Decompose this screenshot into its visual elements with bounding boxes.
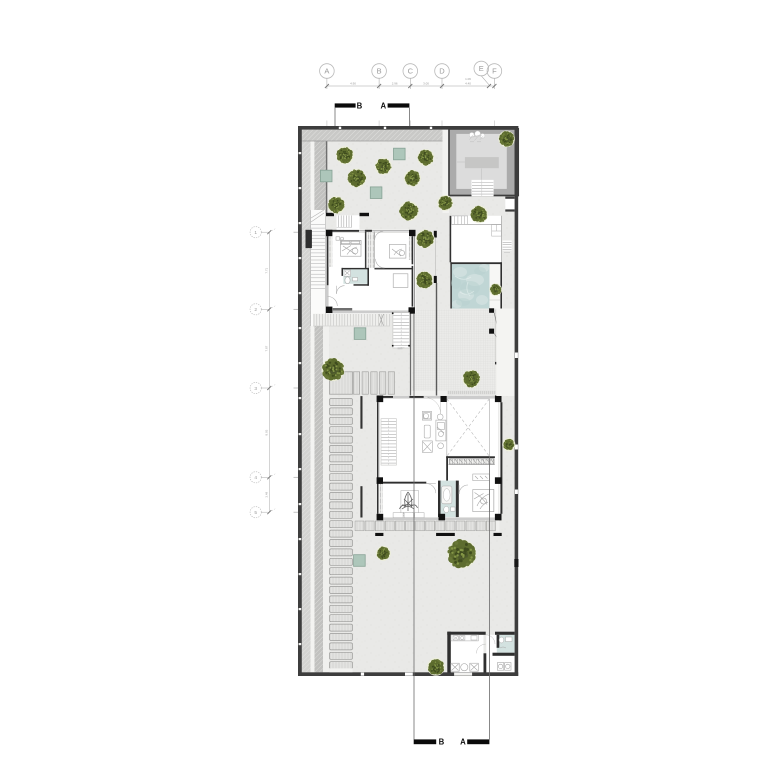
svg-text:B: B: [439, 738, 445, 747]
svg-text:3: 3: [254, 386, 257, 392]
svg-text:4.40: 4.40: [465, 81, 471, 85]
svg-text:2.96: 2.96: [392, 81, 398, 85]
svg-text:4: 4: [254, 475, 257, 481]
svg-text:2: 2: [254, 307, 257, 313]
svg-text:3.00: 3.00: [423, 81, 429, 85]
svg-text:C: C: [408, 67, 414, 76]
svg-text:5: 5: [254, 510, 257, 516]
svg-text:B: B: [377, 67, 382, 76]
svg-text:A: A: [380, 101, 386, 110]
svg-text:E: E: [479, 64, 484, 73]
svg-text:A: A: [460, 738, 466, 747]
svg-text:F: F: [492, 67, 497, 76]
svg-text:D: D: [439, 67, 445, 76]
svg-text:7.71: 7.71: [265, 267, 269, 273]
svg-text:7.87: 7.87: [265, 345, 269, 351]
svg-text:3.49: 3.49: [265, 491, 269, 497]
svg-text:A: A: [324, 67, 329, 76]
svg-text:4.90: 4.90: [350, 81, 356, 85]
svg-text:B: B: [357, 101, 363, 110]
svg-text:1.06: 1.06: [465, 77, 471, 81]
svg-text:1: 1: [254, 230, 257, 236]
svg-text:8.93: 8.93: [265, 429, 269, 435]
